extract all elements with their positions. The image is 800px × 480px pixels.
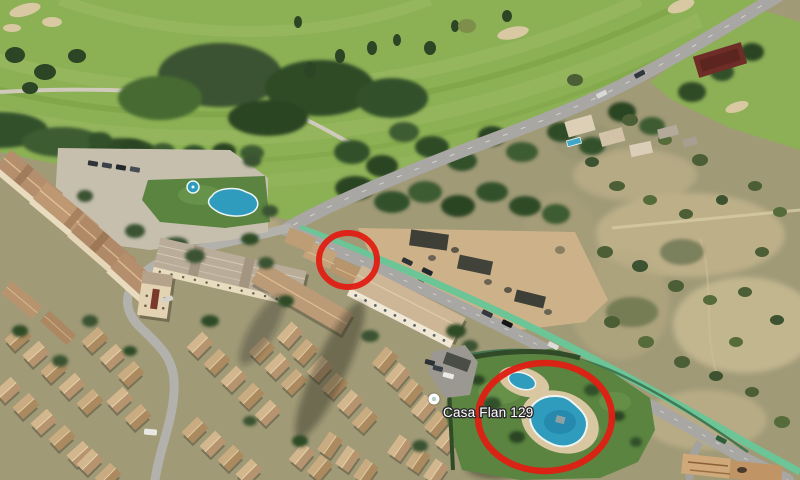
fountain-icon [192,186,195,189]
place-marker-dot [432,397,437,402]
screenshot-root: Casa Flan 129 [0,0,800,480]
van [144,428,157,435]
aerial-map-canvas[interactable]: Casa Flan 129 [0,0,800,480]
place-label-text[interactable]: Casa Flan 129 [443,405,533,420]
